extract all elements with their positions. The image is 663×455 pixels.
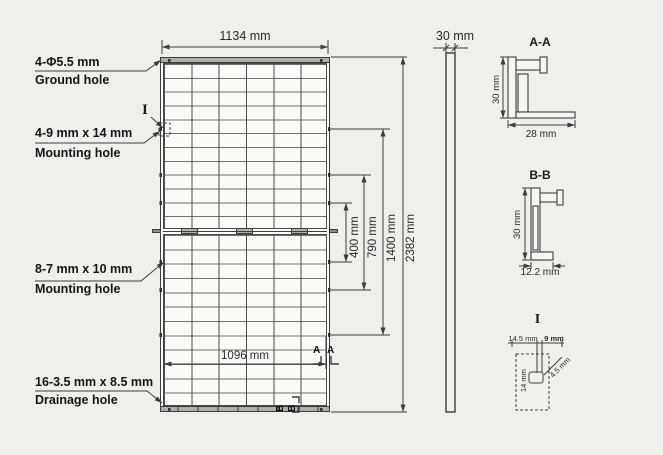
detail-i-slot-width-label: 9 mm: [543, 334, 565, 343]
dim-top-width-label: 1134 mm: [185, 29, 305, 43]
section-b-letter: B: [275, 405, 286, 412]
section-aa-width-label: 28 mm: [510, 129, 572, 140]
callout-ground-hole-dim: 4-Φ5.5 mm: [35, 55, 99, 69]
section-a-letter: A: [313, 345, 320, 356]
dim-inner-width-label: 1096 mm: [195, 350, 295, 362]
callout-mounting-hole-mid-name: Mounting hole: [35, 282, 120, 296]
section-aa-title: A-A: [505, 35, 575, 49]
section-bb-profile: [519, 188, 565, 269]
dim-2382-label: 2382 mm: [405, 214, 417, 262]
section-b-letter: B: [287, 405, 298, 412]
detail-i-slot-length-label: 14 mm: [519, 369, 528, 392]
callout-ground-hole-name: Ground hole: [35, 73, 109, 87]
section-aa-height-label: 30 mm: [491, 75, 502, 104]
detail-i-title: I: [520, 312, 555, 328]
dim-thickness-label: 30 mm: [420, 29, 490, 43]
dim-790-label: 790 mm: [367, 216, 379, 258]
callout-mounting-hole-top-name: Mounting hole: [35, 146, 120, 160]
callout-mounting-hole-mid-dim: 8-7 mm x 10 mm: [35, 262, 132, 276]
callout-mounting-hole-top-dim: 4-9 mm x 14 mm: [35, 126, 132, 140]
side-view: [433, 43, 468, 412]
callout-drainage-hole-name: Drainage hole: [35, 393, 118, 407]
section-bb-width-label: 12.2 mm: [509, 267, 571, 278]
dim-1400-label: 1400 mm: [386, 214, 398, 262]
module-dimension-drawing: 1134 mm 30 mm 4-Φ5.5 mm Ground hole I 4-…: [0, 0, 663, 455]
section-aa-profile: [500, 57, 575, 128]
detail-i-offset-label: 14.5 mm: [507, 334, 539, 343]
section-a-letter: A: [327, 345, 334, 356]
section-bb-height-label: 30 mm: [512, 210, 523, 239]
detail-ref-label: I: [142, 102, 148, 119]
dim-400-label: 400 mm: [349, 216, 361, 258]
callout-drainage-hole-dim: 16-3.5 mm x 8.5 mm: [35, 375, 153, 389]
section-bb-title: B-B: [505, 168, 575, 182]
